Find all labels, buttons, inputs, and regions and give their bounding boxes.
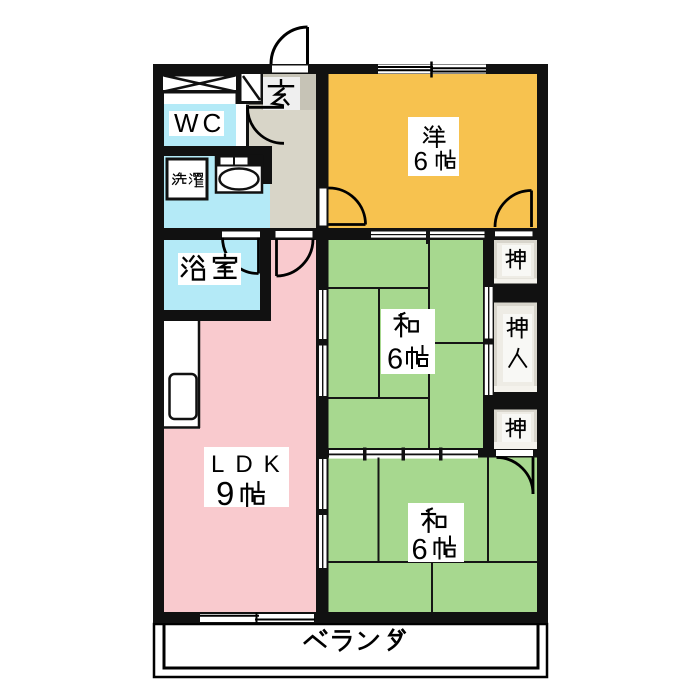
svg-text:6: 6 xyxy=(387,344,403,376)
svg-text:WC: WC xyxy=(174,108,225,138)
svg-text:LDK: LDK xyxy=(211,451,291,478)
svg-text:6: 6 xyxy=(412,534,428,566)
svg-text:6: 6 xyxy=(414,146,428,176)
svg-text:9: 9 xyxy=(216,475,234,512)
